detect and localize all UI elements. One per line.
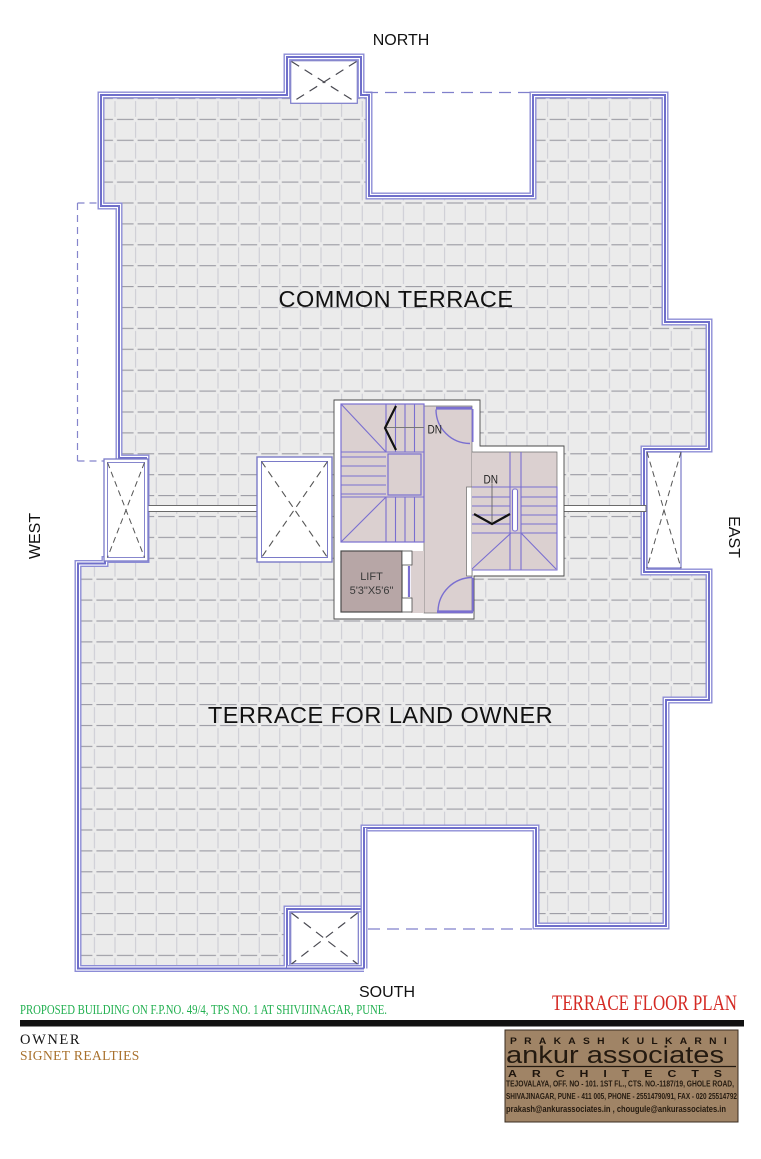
svg-text:TERRACE FOR LAND OWNER: TERRACE FOR LAND OWNER bbox=[208, 702, 553, 728]
svg-text:ankur associates: ankur associates bbox=[506, 1042, 724, 1069]
svg-text:SOUTH: SOUTH bbox=[359, 984, 415, 1001]
svg-text:OWNER: OWNER bbox=[20, 1032, 81, 1048]
svg-text:SIGNET REALTIES: SIGNET REALTIES bbox=[20, 1048, 140, 1063]
svg-text:prakash@ankurassociates.in ,: prakash@ankurassociates.in , chougule@an… bbox=[506, 1104, 726, 1115]
svg-text:5'3"X5'6": 5'3"X5'6" bbox=[350, 585, 394, 597]
svg-text:TERRACE FLOOR PLAN: TERRACE FLOOR PLAN bbox=[552, 990, 737, 1015]
svg-text:NORTH: NORTH bbox=[373, 32, 430, 49]
svg-text:SHIVAJINAGAR, PUNE - 411 005,: SHIVAJINAGAR, PUNE - 411 005, PHONE - 25… bbox=[506, 1091, 737, 1101]
svg-text:TEJOVALAYA, OFF. NO - 101. 1ST: TEJOVALAYA, OFF. NO - 101. 1ST FL., CTS.… bbox=[506, 1079, 734, 1089]
svg-text:WEST: WEST bbox=[27, 513, 44, 559]
svg-text:PROPOSED BUILDING ON F.P.NO. 4: PROPOSED BUILDING ON F.P.NO. 49/4, TPS N… bbox=[20, 1002, 387, 1017]
svg-text:LIFT: LIFT bbox=[360, 571, 383, 583]
svg-text:COMMON TERRACE: COMMON TERRACE bbox=[278, 286, 513, 312]
svg-text:EAST: EAST bbox=[725, 516, 742, 558]
svg-text:DN: DN bbox=[428, 423, 443, 437]
svg-text:DN: DN bbox=[484, 473, 499, 487]
